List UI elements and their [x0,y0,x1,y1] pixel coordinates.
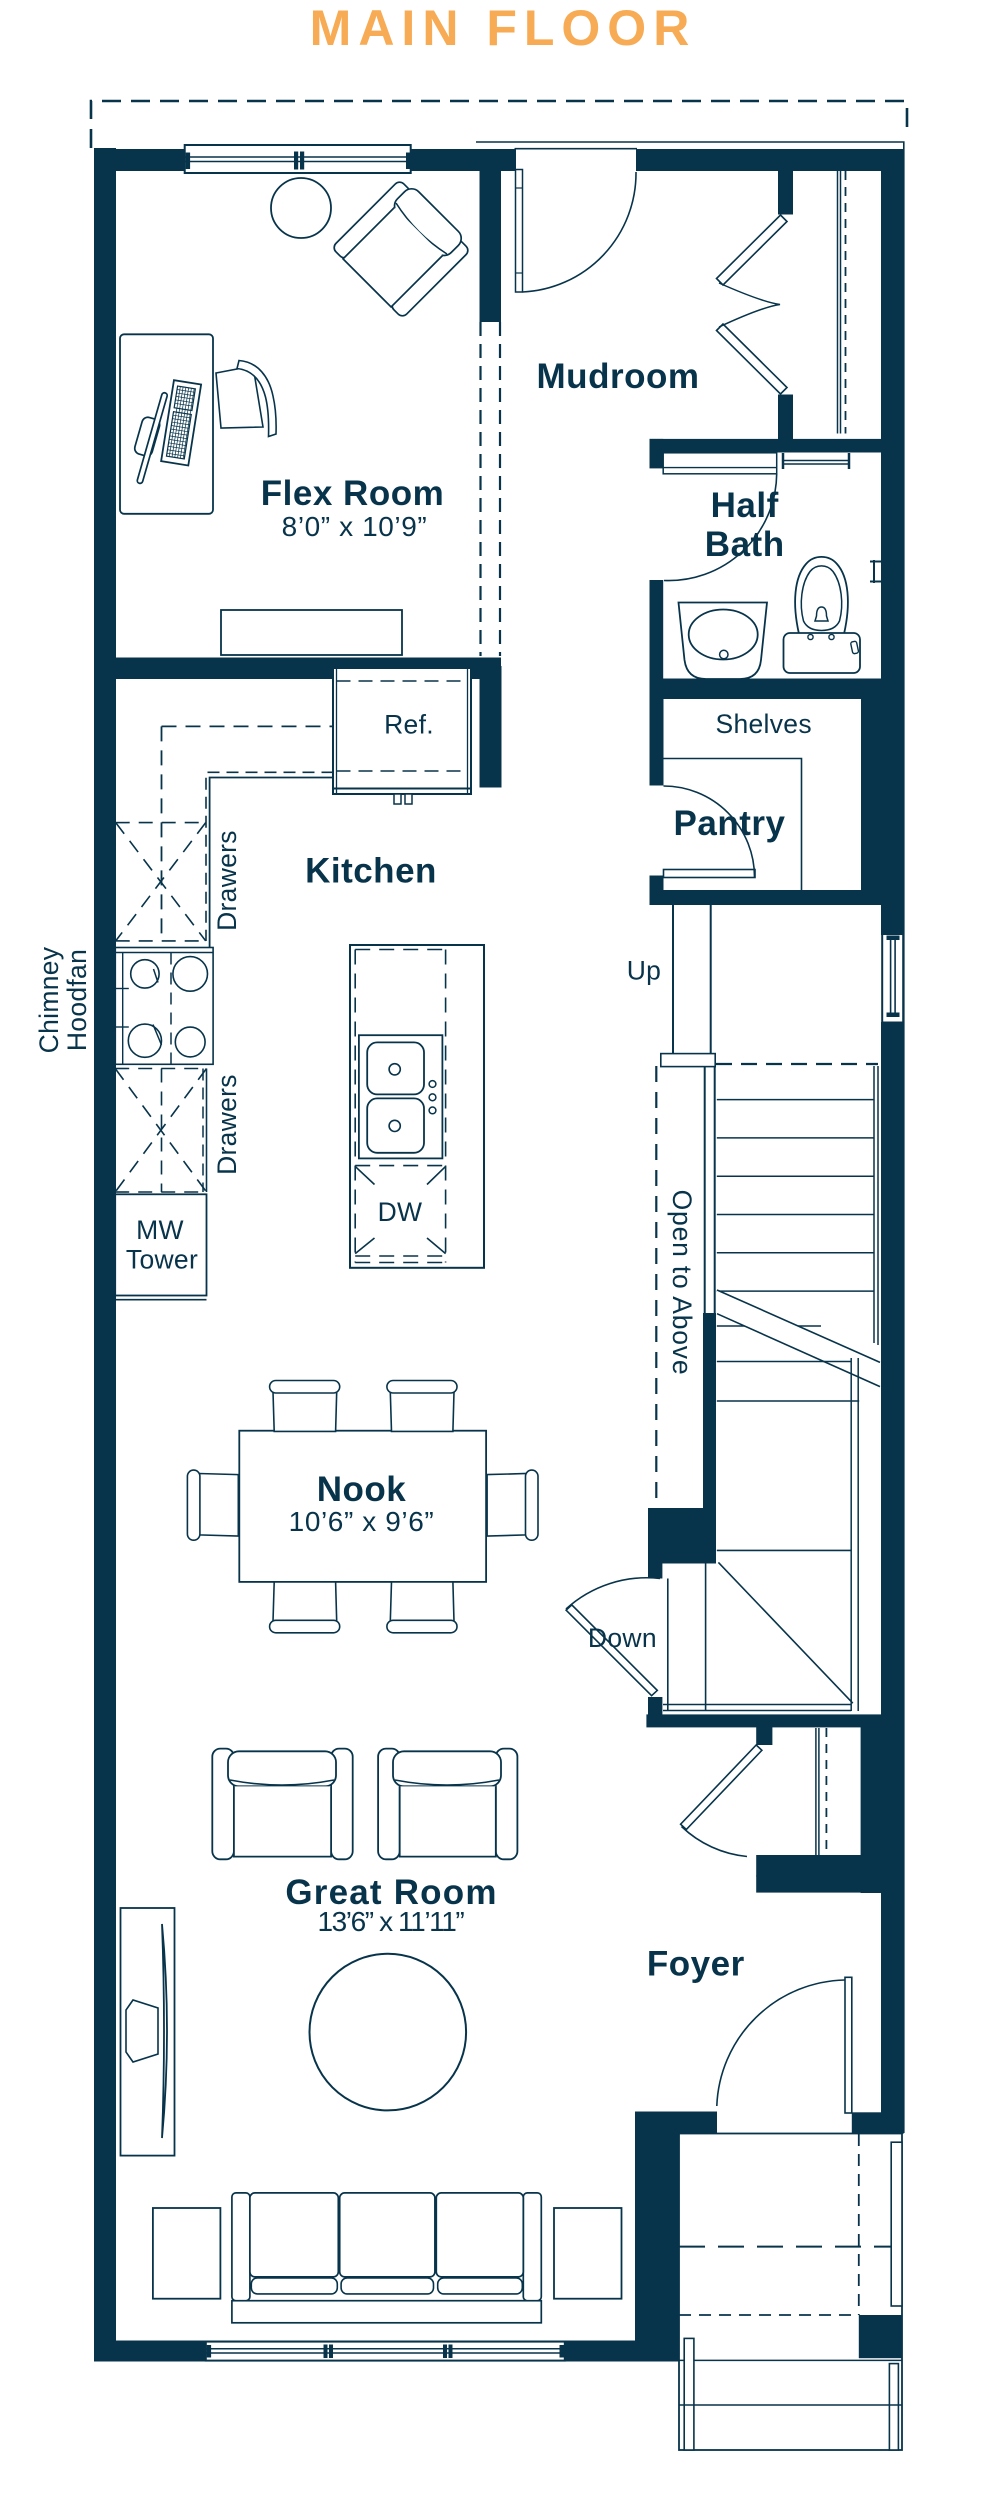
svg-text:Drawers: Drawers [212,830,242,931]
svg-text:DW: DW [378,1197,423,1227]
svg-text:Pantry: Pantry [674,804,786,843]
svg-text:Nook: Nook [317,1470,407,1509]
svg-text:Ref.: Ref. [384,710,434,740]
svg-text:Chimney: Chimney [34,946,64,1053]
svg-text:Hoodfan: Hoodfan [62,949,92,1051]
svg-text:13’6” x 11’11”: 13’6” x 11’11” [317,1906,464,1937]
svg-text:Mudroom: Mudroom [537,357,700,396]
svg-text:Up: Up [627,956,661,986]
svg-text:Half: Half [711,486,779,525]
svg-text:Flex Room: Flex Room [261,474,444,513]
svg-text:Down: Down [588,1623,657,1653]
svg-text:Tower: Tower [126,1245,198,1275]
svg-text:Bath: Bath [705,525,785,564]
svg-text:Drawers: Drawers [212,1074,242,1175]
svg-text:Shelves: Shelves [716,709,812,739]
svg-text:10’6” x 9’6”: 10’6” x 9’6” [289,1506,435,1537]
svg-text:8’0” x 10’9”: 8’0” x 10’9” [282,511,428,542]
svg-text:Foyer: Foyer [647,1945,745,1984]
svg-text:MW: MW [136,1215,184,1245]
svg-text:MAIN FLOOR: MAIN FLOOR [310,0,697,56]
svg-text:Kitchen: Kitchen [305,852,437,891]
svg-text:Open to Above: Open to Above [667,1190,697,1376]
